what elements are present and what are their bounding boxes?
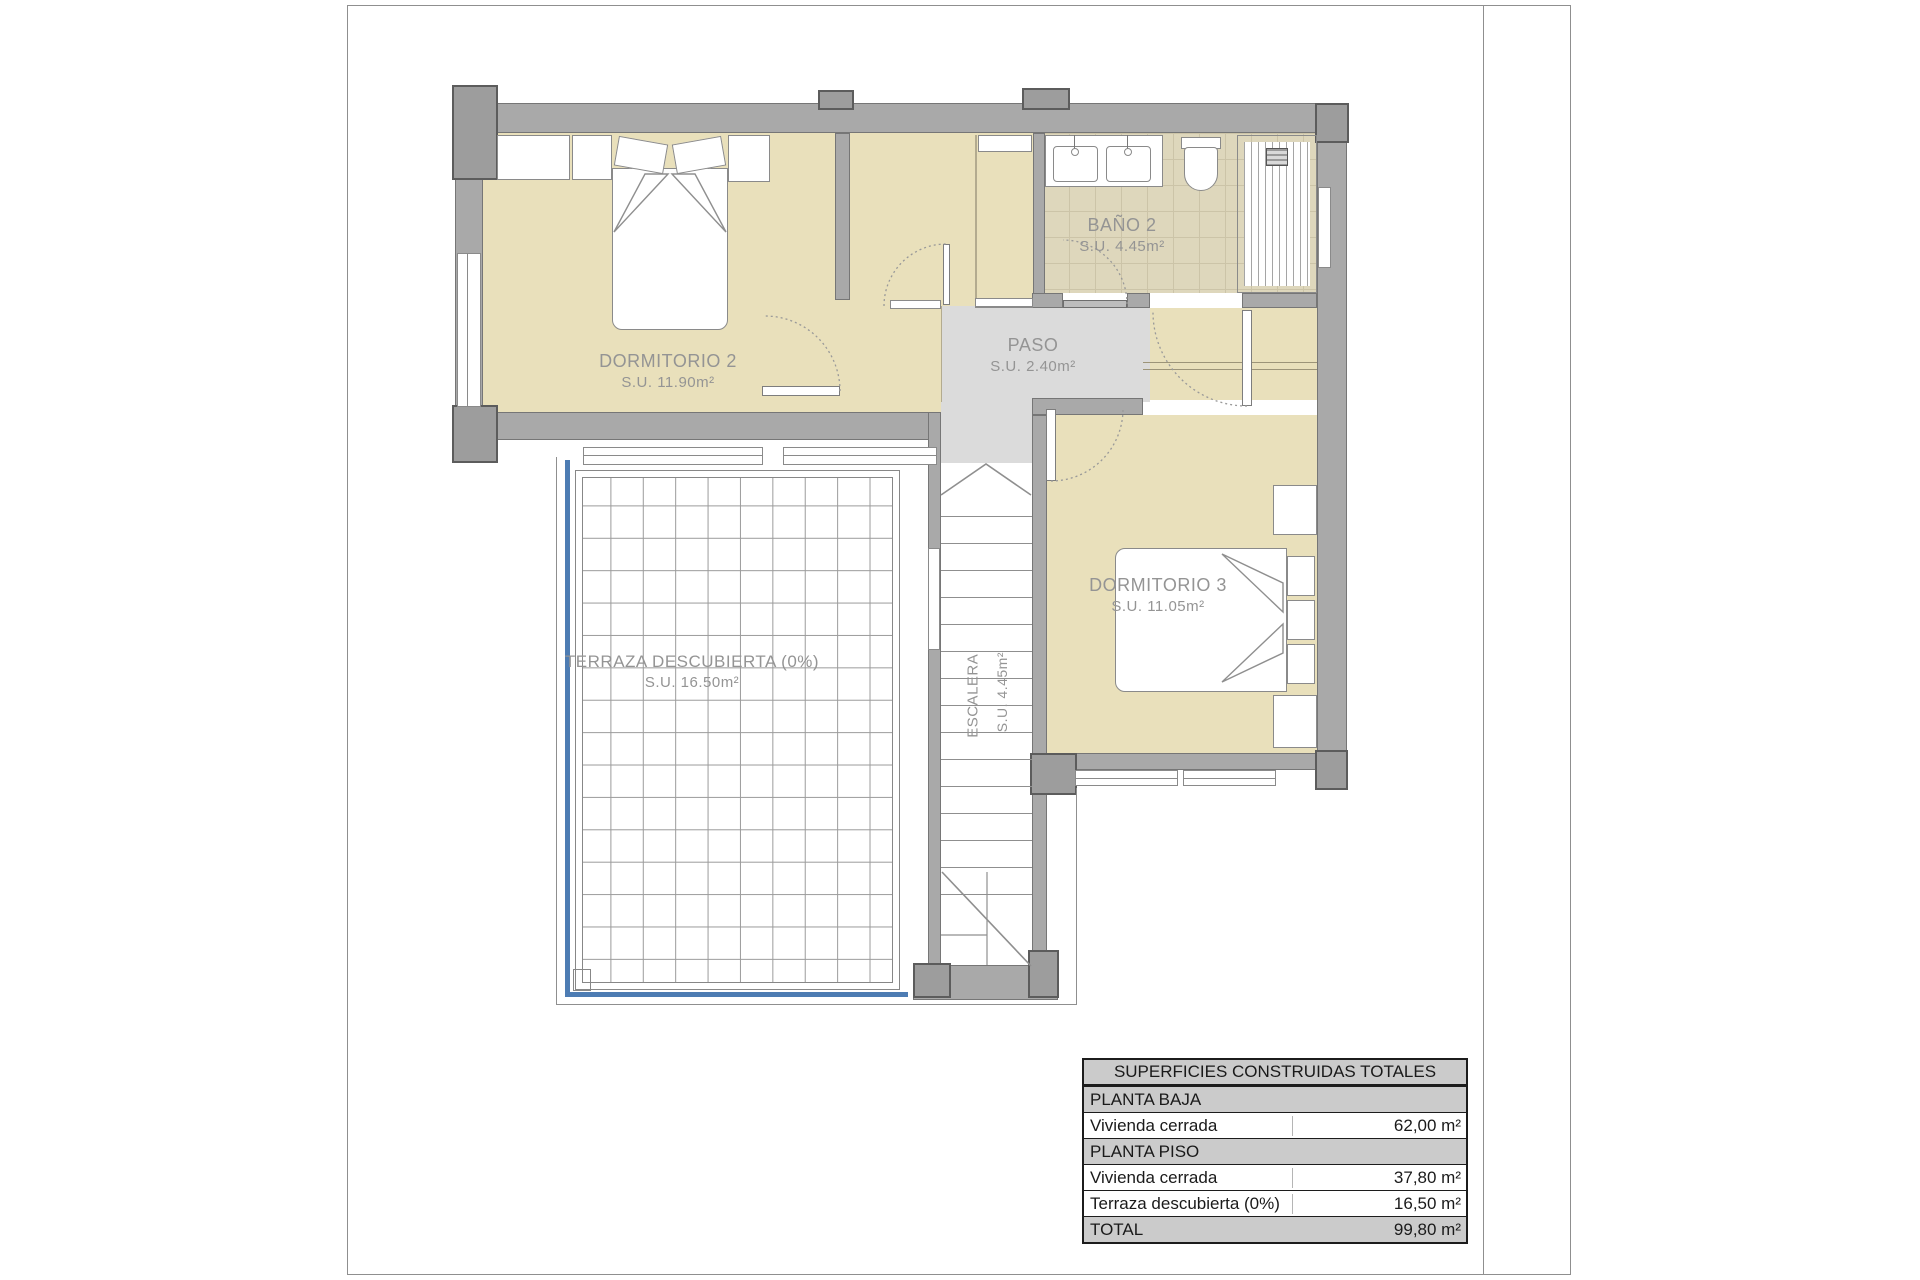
surfaces-table-title-row: SUPERFICIES CONSTRUIDAS TOTALES — [1084, 1060, 1466, 1086]
table-row: TOTAL 99,80 m² — [1084, 1216, 1466, 1242]
terrace-blue-edge-left — [565, 460, 570, 997]
stair-treads — [941, 490, 1032, 905]
terrace-window-1 — [583, 447, 763, 465]
footprint-outline-right — [1076, 788, 1077, 1005]
strip-slider — [975, 298, 1033, 308]
paso-slider-1 — [890, 300, 941, 309]
strip-door-leaf — [943, 244, 950, 305]
dormitorio3-pillow-2 — [1287, 600, 1315, 640]
table-row-value: 16,50 m² — [1292, 1194, 1466, 1214]
room-name: ESCALERA — [963, 616, 983, 776]
table-row-label: PLANTA PISO — [1084, 1142, 1293, 1162]
terrace-border-inner — [582, 477, 893, 983]
faucet-stem-1 — [1074, 135, 1075, 149]
pillar-top-mid — [818, 90, 854, 110]
paso-junction-wall — [1032, 293, 1063, 308]
table-row-label: Vivienda cerrada — [1084, 1168, 1292, 1188]
label-bano2: BAÑO 2 S.U. 4.45m² — [1022, 214, 1222, 257]
footprint-outline-left — [556, 457, 557, 1005]
dormitorio3-door-leaf — [1242, 310, 1252, 406]
pillar-d3-bottom-right — [1315, 750, 1348, 790]
table-row: PLANTA PISO — [1084, 1138, 1466, 1164]
room-name: DORMITORIO 3 — [1028, 574, 1288, 597]
stair-west-wall — [928, 412, 941, 1000]
surfaces-table-title: SUPERFICIES CONSTRUIDAS TOTALES — [1114, 1062, 1436, 1082]
room-name: TERRAZA DESCUBIERTA (0%) — [512, 651, 872, 673]
bath-wall-niche — [1318, 187, 1331, 268]
surfaces-table: SUPERFICIES CONSTRUIDAS TOTALES PLANTA B… — [1082, 1058, 1468, 1244]
table-row-label: PLANTA BAJA — [1084, 1090, 1293, 1110]
dormitorio2-closet — [497, 135, 570, 180]
table-row-label: Terraza descubierta (0%) — [1084, 1194, 1292, 1214]
closet-strip-divider — [975, 135, 977, 298]
room-area: S.U. 2.40m² — [933, 357, 1133, 377]
terrace-blue-edge-bottom — [565, 992, 908, 997]
pillar-bath-top — [1022, 88, 1070, 110]
terrace-corner-detail — [573, 969, 591, 991]
pillar-d3-bottom-left — [1030, 753, 1077, 795]
room-area: S.U. 4.45m² — [993, 612, 1011, 772]
pillar-left-bottom — [452, 405, 498, 463]
room-area: S.U. 16.50m² — [512, 673, 872, 693]
toilet-bowl — [1184, 147, 1218, 191]
room-area: S.U. 11.90m² — [538, 373, 798, 393]
dormitorio3-south-wall — [1047, 753, 1347, 770]
dormitorio2-nightstand-left — [572, 135, 612, 180]
table-row: Vivienda cerrada 62,00 m² — [1084, 1112, 1466, 1138]
dormitorio3-nightstand — [1273, 695, 1317, 748]
label-dormitorio2: DORMITORIO 2 S.U. 11.90m² — [538, 350, 798, 393]
table-row-value: 37,80 m² — [1292, 1168, 1466, 1188]
table-row-value: 62,00 m² — [1292, 1116, 1466, 1136]
shower-drain-icon — [1266, 148, 1288, 166]
faucet-stem-2 — [1127, 135, 1128, 149]
dormitorio2-nightstand-right — [728, 135, 770, 182]
label-escalera-area: S.U. 4.45m² — [993, 612, 1011, 772]
table-row-value: 99,80 m² — [1293, 1220, 1466, 1240]
stair-window — [928, 548, 940, 650]
paso-landing-floor — [941, 402, 1032, 463]
table-row-label: TOTAL — [1084, 1220, 1293, 1240]
pillar-top-right — [1315, 103, 1349, 143]
dormitorio3-bed — [1115, 548, 1287, 692]
table-row: Vivienda cerrada 37,80 m² — [1084, 1164, 1466, 1190]
pillar-stair-bottom-right — [1028, 950, 1059, 998]
dormitorio3-window-2 — [1183, 770, 1276, 786]
label-paso: PASO S.U. 2.40m² — [933, 334, 1133, 377]
terrace-window-2 — [783, 447, 937, 465]
faucet-icon-1 — [1071, 148, 1079, 156]
bano2-south-wall — [1127, 293, 1150, 308]
room-name: PASO — [933, 334, 1133, 357]
label-escalera-name: ESCALERA — [963, 616, 983, 776]
room-name: BAÑO 2 — [1022, 214, 1222, 237]
pillar-top-left — [452, 85, 498, 180]
dormitorio3-pillow-3 — [1287, 644, 1315, 684]
stair-east-wall — [1032, 415, 1047, 1000]
stair-door-leaf — [1046, 409, 1056, 481]
pillar-stair-bottom-left — [913, 963, 951, 998]
sheet-margin-line — [1483, 5, 1484, 1275]
top-wall — [455, 103, 1347, 133]
dormitorio2-east-wall — [835, 133, 850, 300]
dormitorio2-bed — [612, 168, 728, 330]
table-row: PLANTA BAJA — [1084, 1086, 1466, 1112]
dormitorio3-north-wall — [1242, 293, 1317, 308]
dormitorio2-window-west — [457, 253, 481, 407]
label-dormitorio3: DORMITORIO 3 S.U. 11.05m² — [1028, 574, 1288, 617]
room-name: DORMITORIO 2 — [538, 350, 798, 373]
footprint-outline-bottom — [556, 1004, 1077, 1005]
room-area: S.U. 11.05m² — [1028, 597, 1288, 617]
table-row-label: Vivienda cerrada — [1084, 1116, 1292, 1136]
faucet-icon-2 — [1124, 148, 1132, 156]
strip-niche — [978, 135, 1032, 152]
dormitorio3-pillow-1 — [1287, 556, 1315, 596]
dormitorio3-closet-line — [1143, 362, 1317, 370]
room-area: S.U. 4.45m² — [1022, 237, 1222, 257]
label-terraza: TERRAZA DESCUBIERTA (0%) S.U. 16.50m² — [512, 651, 872, 693]
dormitorio3-window-1 — [1075, 770, 1178, 786]
table-row: Terraza descubierta (0%) 16,50 m² — [1084, 1190, 1466, 1216]
dormitorio2-closet-strip-floor — [941, 133, 1033, 306]
dormitorio3-closet-box — [1273, 485, 1317, 535]
bano2-door-leaf — [1063, 300, 1127, 308]
dormitorio2-south-wall — [455, 412, 941, 440]
dormitorio3-floor-north — [1150, 308, 1317, 400]
